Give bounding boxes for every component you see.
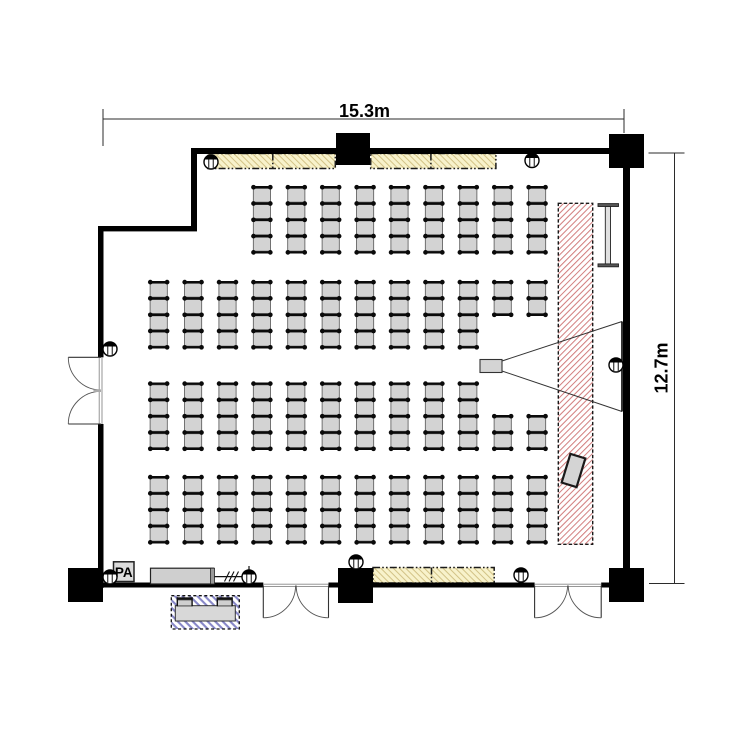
svg-text:15.3m: 15.3m (339, 101, 390, 121)
svg-text:12.7m: 12.7m (652, 342, 672, 393)
